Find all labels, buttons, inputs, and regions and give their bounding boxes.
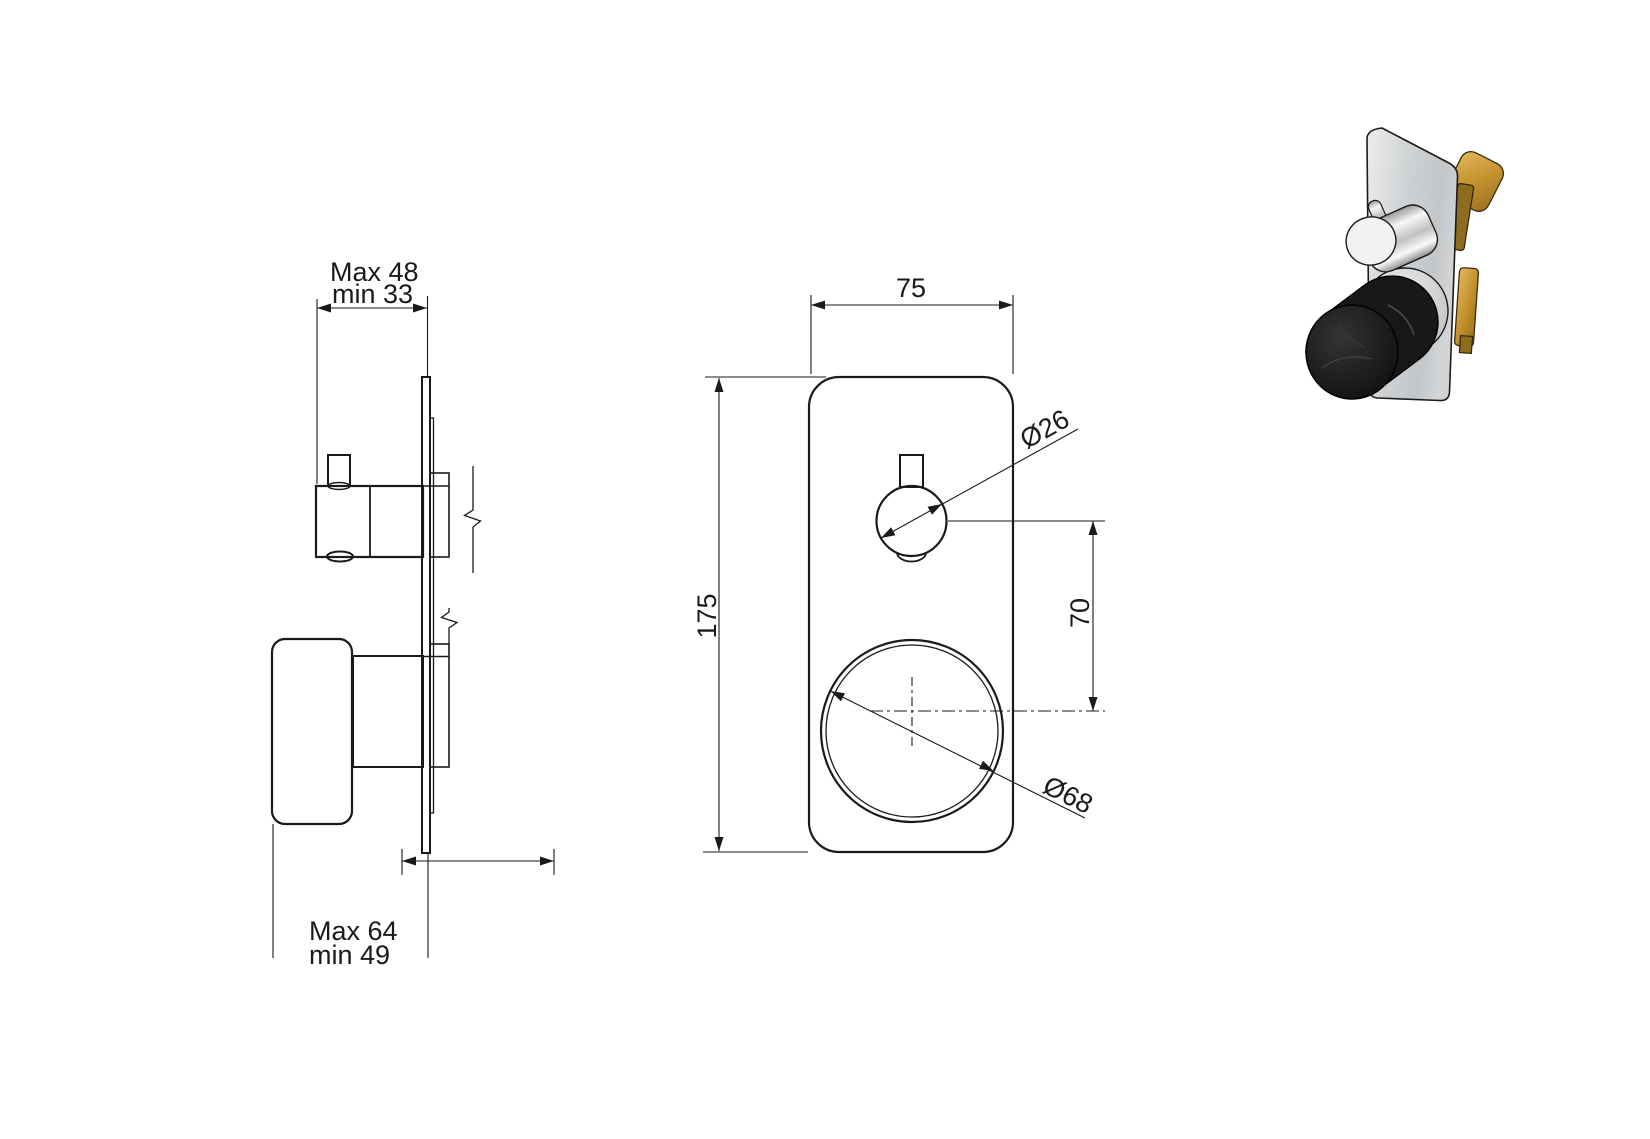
arrowhead [999,301,1013,310]
concealed-valve-bodies [423,473,457,767]
technical-drawing: Max 48 min 33 [0,0,1650,1139]
arrowhead [811,301,825,310]
arrowhead [1089,521,1098,535]
small-knob-side [316,455,423,562]
dim-large-knob-diameter: Ø68 [830,691,1097,820]
arrowhead [715,837,724,851]
drawing-canvas: Max 48 min 33 [0,0,1650,1139]
arrowhead [715,378,724,392]
brass-cartridge-bottom [1454,267,1478,346]
large-knob-disc-side [272,639,352,824]
dim-plate-width: 75 [811,273,1013,374]
arrowhead [1089,697,1098,711]
large-knob-neck-side [353,656,423,767]
wall-plate-side [422,377,434,853]
small-knob-pin-side [328,455,350,486]
large-knob-face-3d [1306,305,1398,399]
arrowhead [928,504,942,515]
side-view: Max 48 min 33 [272,257,554,970]
dim-plate-height-label: 175 [692,593,722,638]
small-knob-pin-front [900,455,923,487]
dim-center-distance-label: 70 [1065,598,1095,628]
dim-plate-height: 175 [692,377,826,852]
brass-valve-bottom [1454,267,1478,353]
arrowhead [317,304,331,313]
arrowhead [413,304,427,313]
dim-depth-bottom-min-label: min 49 [309,940,390,970]
brass-bracket-bottom [1459,336,1472,354]
arrowhead [540,857,554,866]
wall-break-line-upper [465,466,481,573]
arrowhead [881,527,895,538]
product-photo-3d [1288,128,1508,416]
front-view: 75 175 Ø26 70 [692,273,1105,852]
leader-line [881,429,1078,538]
dim-center-distance: 70 [948,521,1105,711]
plate-front-slab [422,377,430,853]
dim-depth-top-min-label: min 33 [332,279,413,309]
wall-break-line-lower [442,608,458,644]
dim-large-knob-diameter-label: Ø68 [1038,770,1097,820]
dim-small-knob-diameter: Ø26 [881,404,1078,538]
arrowhead [402,857,416,866]
dim-depth-bottom: Max 64 min 49 [273,824,554,970]
dim-plate-width-label: 75 [896,273,926,303]
large-knob-side [272,639,423,824]
dim-depth-top: Max 48 min 33 [317,257,428,484]
